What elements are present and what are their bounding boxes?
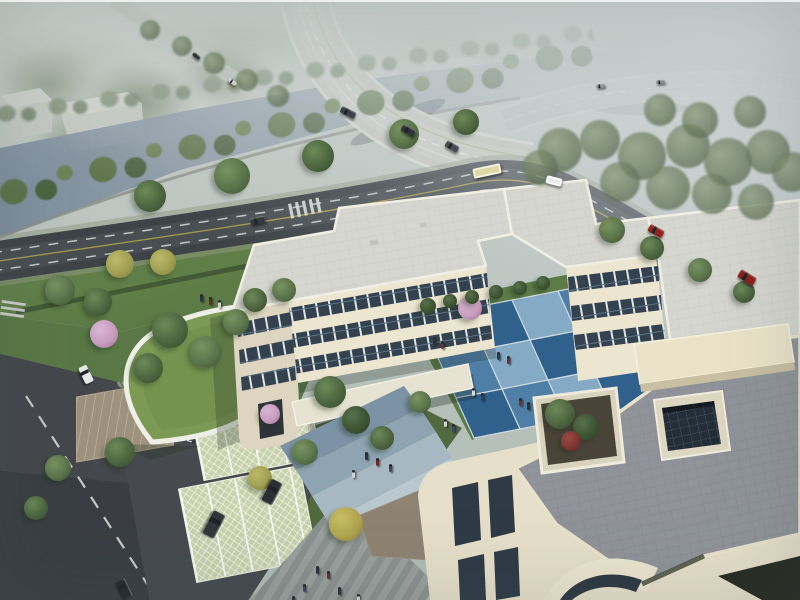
architectural-rendering: Aerial architectural rendering of a cour… [0, 0, 800, 600]
frame-edge [0, 0, 800, 2]
